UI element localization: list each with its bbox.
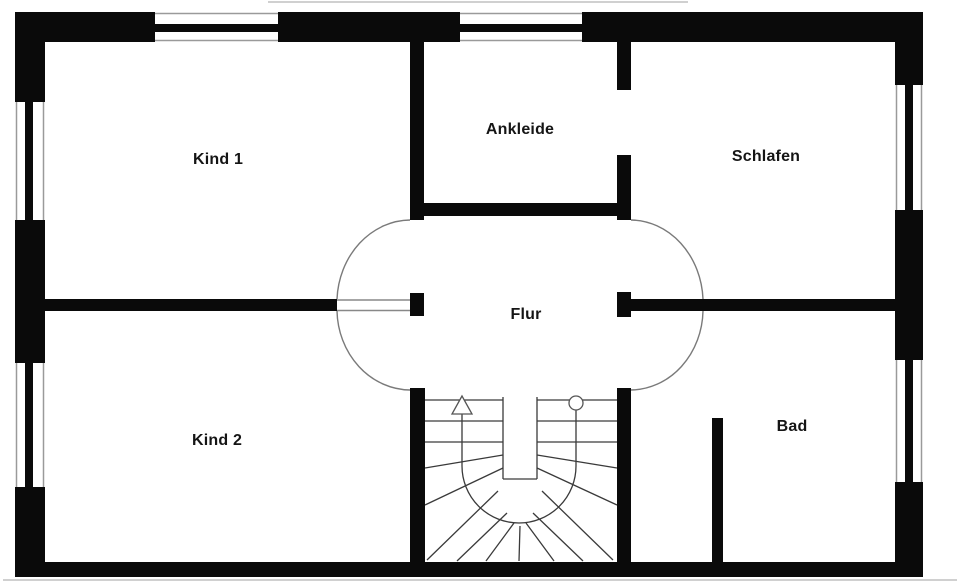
floorplan-svg [0, 0, 960, 583]
wall-outer-left [15, 12, 45, 577]
window-glass-bar [460, 24, 582, 32]
artifacts-group [3, 2, 957, 580]
window-left-kind2 [15, 363, 45, 487]
door-arc-flur-top-right [631, 220, 703, 299]
wall-mid-right-endcap [617, 292, 631, 317]
window-glass-bar [155, 24, 278, 32]
room-label-ankleide: Ankleide [486, 121, 554, 139]
window-glass-bar [25, 102, 33, 220]
stair-tread-line [425, 455, 503, 468]
wall-ankleide-bottom [424, 203, 631, 216]
wall-outer-bottom [15, 562, 923, 577]
window-right-schlafen [895, 85, 923, 210]
wall-mid-right [617, 299, 895, 311]
room-label-bad: Bad [777, 418, 808, 436]
stair-tread-line [519, 526, 520, 561]
wall-stairs-left [410, 388, 425, 562]
wall-kind1-ankleide [410, 42, 424, 220]
stair-tread-line [427, 491, 498, 560]
room-label-kind-2: Kind 2 [192, 432, 242, 450]
stair-direction-arrow-icon [452, 396, 472, 414]
room-label-schlafen: Schlafen [732, 148, 800, 166]
wall-ankleide-schlafen-upper [617, 42, 631, 90]
stair-walkline-start-circle-icon [569, 396, 583, 410]
stair-tread-line [537, 468, 617, 505]
stair-walk-line [462, 410, 576, 523]
window-left-kind1 [15, 102, 45, 220]
walls-group [15, 12, 923, 577]
wall-mid-left [45, 299, 337, 311]
window-glass-bar [905, 85, 913, 210]
window-glass-bar [25, 363, 33, 487]
wall-left-door-stub [410, 293, 424, 316]
door-arc-flur-bottom-left [337, 311, 410, 390]
door-arc-flur-bottom-right [631, 311, 703, 390]
window-glass-bar [905, 360, 913, 482]
window-right-bad [895, 360, 923, 482]
stairs-group [425, 396, 617, 561]
wall-bad-stub [712, 418, 723, 562]
room-label-kind-1: Kind 1 [193, 151, 243, 169]
window-top-kind1 [155, 12, 278, 42]
room-label-flur: Flur [510, 306, 541, 324]
stair-tread-line [533, 513, 583, 561]
stair-tread-line [425, 468, 503, 505]
window-top-ankleide [460, 12, 582, 42]
windows-group [15, 12, 923, 487]
stair-tread-line [537, 455, 617, 468]
floorplan-canvas: Kind 1AnkleideSchlafenFlurKind 2Bad [0, 0, 960, 583]
door-arc-flur-top-left [337, 220, 410, 299]
wall-stairs-right [617, 388, 631, 562]
doorways-group [337, 300, 410, 311]
stair-tread-line [542, 491, 613, 560]
